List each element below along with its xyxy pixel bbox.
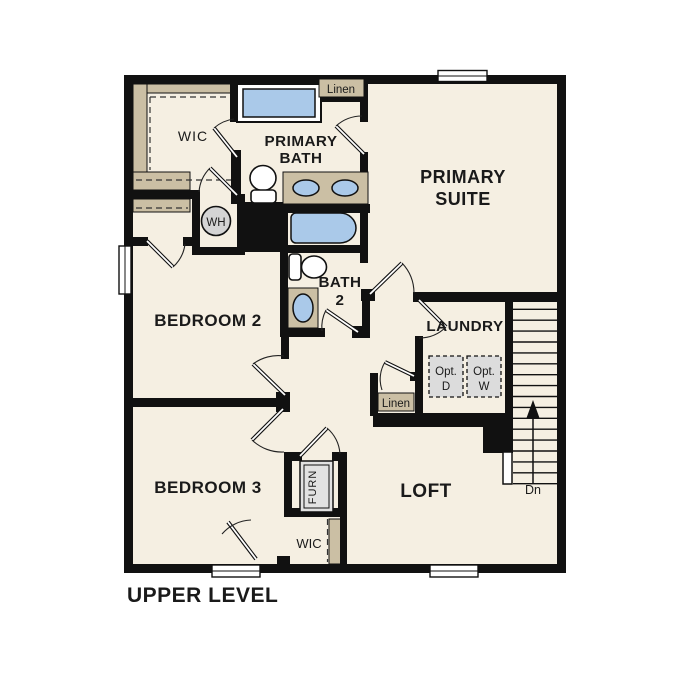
window-bedroom3 <box>212 565 260 577</box>
bathtub <box>291 213 356 243</box>
wic-primary-label: WIC <box>178 128 208 144</box>
window-primary-suite <box>438 71 487 82</box>
primary-bath-line2: BATH <box>279 150 322 167</box>
furnace-label: FURN <box>307 470 319 505</box>
primary-vanity <box>283 172 368 204</box>
opt-washer-line2: W <box>479 381 490 393</box>
window-loft <box>430 565 478 577</box>
wic-bedroom3-label: WIC <box>296 536 321 551</box>
opt-dryer-line2: D <box>442 381 450 393</box>
water-heater-label: WH <box>206 217 225 229</box>
primary-toilet <box>250 166 276 204</box>
opt-washer-line1: Opt. <box>473 366 495 378</box>
loft-label: LOFT <box>400 481 452 502</box>
bath2-vanity <box>288 288 318 328</box>
bedroom2-label: BEDROOM 2 <box>154 311 261 330</box>
window-bedroom2 <box>119 246 131 294</box>
bath2-line2: 2 <box>336 292 345 309</box>
bedroom3-label: BEDROOM 3 <box>154 478 261 497</box>
opt-dryer-line1: Opt. <box>435 366 457 378</box>
primary-suite-line2: SUITE <box>435 189 491 209</box>
primary-suite-line1: PRIMARY <box>420 167 506 187</box>
stair-railing <box>503 452 512 484</box>
linen-hall-label: Linen <box>382 398 410 410</box>
linen-bath-label: Linen <box>327 84 355 96</box>
page-title: UPPER LEVEL <box>127 584 278 607</box>
floor-plan: WIC PRIMARYBATH Linen PRIMARYSUITE WH BE… <box>0 0 687 687</box>
bath2-line1: BATH <box>318 274 361 291</box>
shower <box>237 84 321 122</box>
laundry-label: LAUNDRY <box>426 318 503 335</box>
stairs-down-label: Dn <box>525 483 541 497</box>
primary-bath-line1: PRIMARY <box>265 133 338 150</box>
